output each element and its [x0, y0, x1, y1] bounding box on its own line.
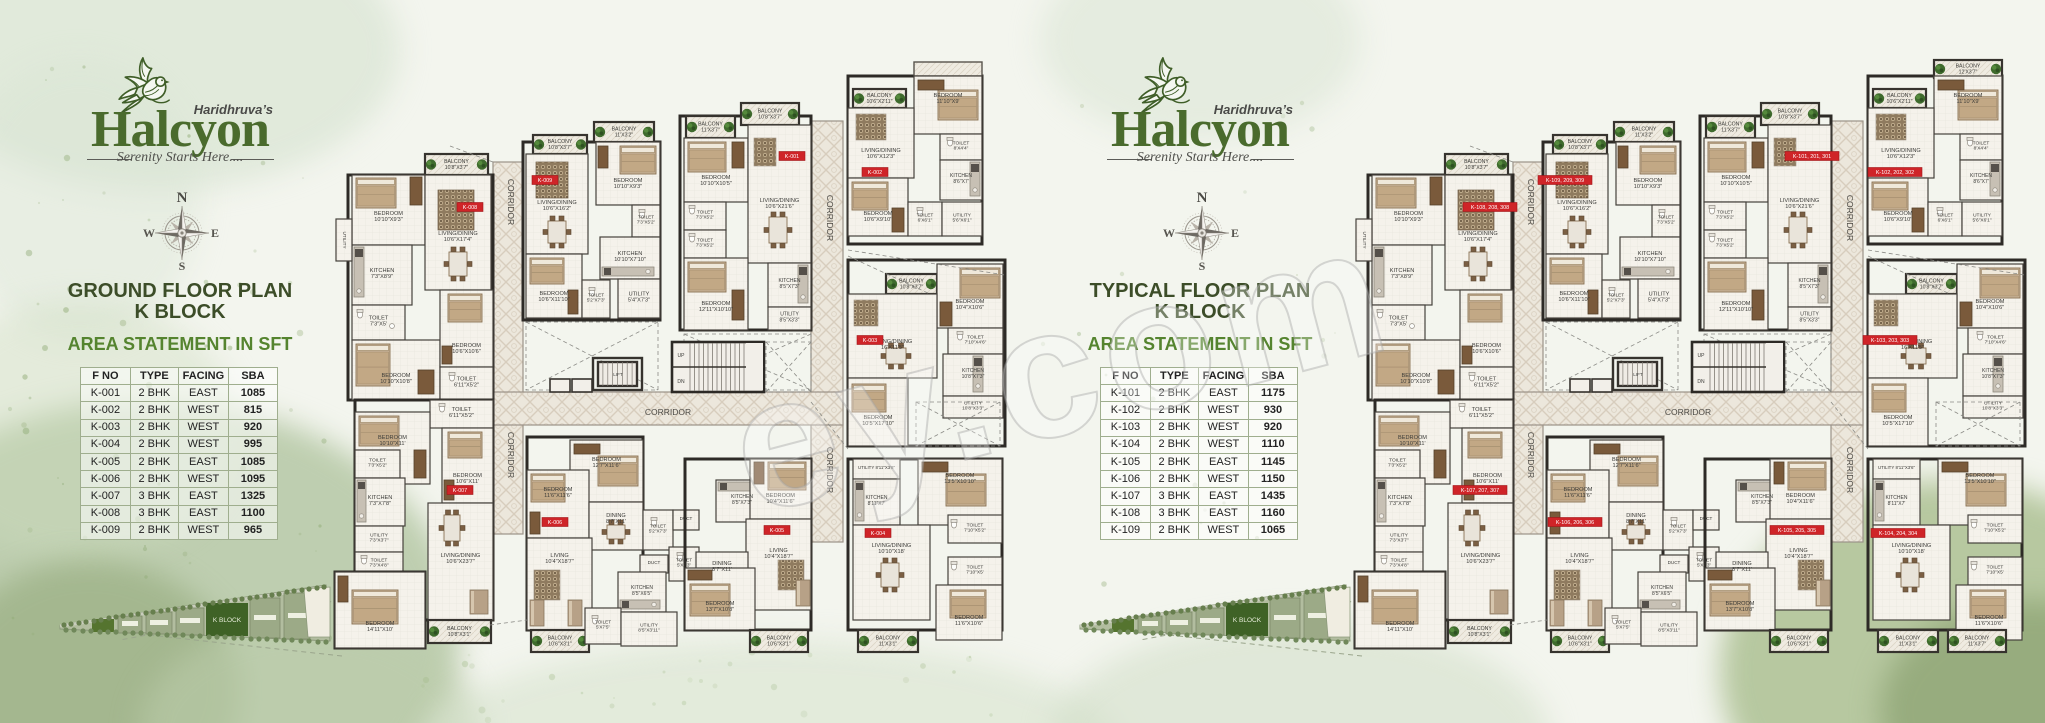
svg-text:DINING8'7"X11': DINING8'7"X11'	[1732, 561, 1752, 573]
svg-text:TOILET5'2"X7'3": TOILET5'2"X7'3"	[587, 292, 606, 302]
svg-text:BEDROOM10'5"X17'10": BEDROOM10'5"X17'10"	[1882, 415, 1914, 427]
svg-text:K-005: K-005	[770, 528, 784, 534]
svg-text:BEDROOM10'6"X10'6": BEDROOM10'6"X10'6"	[452, 343, 481, 355]
svg-text:BALCONY10'6"X3'1": BALCONY10'6"X3'1"	[548, 636, 573, 648]
svg-text:CORRIDOR: CORRIDOR	[1526, 432, 1536, 478]
svg-text:KITCHEN8'5"X6'5": KITCHEN8'5"X6'5"	[631, 585, 653, 597]
svg-text:TOILET5'X7'3": TOILET5'X7'3"	[1696, 557, 1712, 567]
svg-text:BEDROOM10'6"X9'10": BEDROOM10'6"X9'10"	[864, 211, 893, 223]
svg-text:TOILET7'3"X5'2": TOILET7'3"X5'2"	[1716, 209, 1735, 219]
svg-text:LIVING/DINING10'6"X16'2": LIVING/DINING10'6"X16'2"	[537, 200, 576, 212]
svg-text:UTILITY7'3"X3'7": UTILITY7'3"X3'7"	[1389, 532, 1408, 543]
svg-text:BEDROOM10'10"X10'8": BEDROOM10'10"X10'8"	[1400, 373, 1432, 385]
svg-text:TOILET5'X7'3": TOILET5'X7'3"	[676, 557, 692, 567]
svg-text:BEDROOM14'11"X10': BEDROOM14'11"X10'	[1386, 621, 1415, 633]
svg-text:BALCONY12'X3'7": BALCONY12'X3'7"	[1956, 64, 1981, 76]
svg-text:BEDROOM12'7"X11'6": BEDROOM12'7"X11'6"	[1612, 457, 1641, 469]
svg-text:BEDROOM10'6"X11': BEDROOM10'6"X11'	[1473, 473, 1502, 485]
svg-text:TOILET7'3"X5'2": TOILET7'3"X5'2"	[696, 209, 715, 219]
svg-text:BEDROOM10'6"X9'10": BEDROOM10'6"X9'10"	[1884, 211, 1913, 223]
svg-text:BALCONY10'8"X3'7": BALCONY10'8"X3'7"	[548, 139, 573, 151]
svg-text:BEDROOM10'10"X9'3": BEDROOM10'10"X9'3"	[614, 178, 643, 190]
svg-text:BALCONY10'6"X2'11": BALCONY10'6"X2'11"	[1886, 93, 1912, 105]
svg-text:TOILET6'11"X5'2": TOILET6'11"X5'2"	[1474, 376, 1499, 388]
svg-text:BALCONY11'X3'7": BALCONY11'X3'7"	[1965, 636, 1990, 648]
svg-text:TOILET7'3"X4'8": TOILET7'3"X4'8"	[1389, 557, 1408, 568]
svg-text:BALCONY10'6"X2'11": BALCONY10'6"X2'11"	[866, 93, 892, 105]
svg-text:BALCONY10'8"X3'7": BALCONY10'8"X3'7"	[1464, 159, 1489, 171]
svg-text:KITCHEN7'3"X8'9": KITCHEN7'3"X8'9"	[1390, 268, 1415, 280]
svg-text:UTILITY10'8"X3'3": UTILITY10'8"X3'3"	[962, 400, 984, 411]
svg-text:CORRIDOR: CORRIDOR	[506, 179, 516, 225]
svg-text:BEDROOM10'6"X11'10": BEDROOM10'6"X11'10"	[538, 291, 569, 303]
svg-text:UTILITY 8'11"X3'6": UTILITY 8'11"X3'6"	[1878, 465, 1916, 470]
svg-text:BALCONY10'8"X3'7": BALCONY10'8"X3'7"	[758, 109, 783, 121]
svg-text:TOILET5'2"X7'3": TOILET5'2"X7'3"	[649, 523, 668, 533]
svg-text:CORRIDOR: CORRIDOR	[825, 195, 835, 241]
svg-text:UTILITY8'5"X3'3": UTILITY8'5"X3'3"	[1800, 312, 1820, 324]
svg-text:K-108, 208, 308: K-108, 208, 308	[1471, 205, 1509, 211]
svg-text:K-109, 209, 309: K-109, 209, 309	[1546, 178, 1584, 184]
svg-text:DN: DN	[1697, 379, 1705, 385]
svg-text:KITCHEN8'5"X7'3": KITCHEN8'5"X7'3"	[779, 278, 801, 290]
svg-text:K-002: K-002	[868, 170, 882, 176]
svg-text:DUCT: DUCT	[648, 560, 661, 565]
svg-text:BEDROOM13'5"X10'10": BEDROOM13'5"X10'10"	[1964, 473, 1996, 485]
svg-text:KITCHEN10'8"X7'3": KITCHEN10'8"X7'3"	[962, 368, 985, 380]
svg-text:CORRIDOR: CORRIDOR	[1526, 179, 1536, 225]
svg-text:BEDROOM10'10"X11': BEDROOM10'10"X11'	[1398, 435, 1427, 447]
svg-text:N: N	[177, 190, 188, 206]
svg-text:UTILITY8'5"X3'11": UTILITY8'5"X3'11"	[638, 622, 660, 633]
svg-text:BALCONY10'8"X3'7": BALCONY10'8"X3'7"	[899, 279, 924, 291]
svg-text:TOILET7'3"X5'2": TOILET7'3"X5'2"	[637, 214, 656, 224]
svg-text:KITCHEN8'5"X7'3": KITCHEN8'5"X7'3"	[1799, 278, 1821, 290]
svg-text:UTILITY5'6"X6'1": UTILITY5'6"X6'1"	[1972, 212, 1991, 223]
svg-text:BEDROOM13'7"X10'8": BEDROOM13'7"X10'8"	[706, 601, 735, 613]
svg-text:TOILET5'X7'5": TOILET5'X7'5"	[595, 619, 611, 629]
svg-text:BEDROOM12'7"X11'6": BEDROOM12'7"X11'6"	[592, 457, 621, 469]
svg-text:BEDROOM11'6"X10'6": BEDROOM11'6"X10'6"	[955, 615, 984, 627]
svg-text:TOILET5'X7'5": TOILET5'X7'5"	[1615, 619, 1631, 629]
svg-text:BEDROOM10'4"X10'6": BEDROOM10'4"X10'6"	[956, 299, 985, 311]
svg-text:DUCT: DUCT	[1700, 516, 1713, 521]
svg-text:N: N	[1197, 190, 1208, 206]
svg-text:DN: DN	[677, 379, 685, 385]
svg-text:BEDROOM13'5"X10'10": BEDROOM13'5"X10'10"	[944, 473, 976, 485]
svg-text:BEDROOM10'4"X10'6": BEDROOM10'4"X10'6"	[1976, 299, 2005, 311]
svg-text:BALCONY10'8"X3'1": BALCONY10'8"X3'1"	[447, 626, 472, 638]
svg-text:K BLOCK: K BLOCK	[213, 617, 242, 624]
svg-text:E: E	[211, 226, 219, 240]
svg-text:BEDROOM10'10"X11': BEDROOM10'10"X11'	[378, 435, 407, 447]
svg-text:BALCONY10'8"X3'7": BALCONY10'8"X3'7"	[1568, 139, 1593, 151]
svg-text:BALCONY11'X3'7": BALCONY11'X3'7"	[698, 122, 723, 134]
svg-text:TOILET7'3"X5'2": TOILET7'3"X5'2"	[1388, 457, 1407, 468]
svg-text:BEDROOM12'11"X10'10": BEDROOM12'11"X10'10"	[1719, 301, 1753, 313]
svg-text:BEDROOM10'10"X9'3": BEDROOM10'10"X9'3"	[1634, 178, 1663, 190]
svg-text:K-001: K-001	[785, 154, 799, 160]
svg-text:S: S	[179, 259, 186, 273]
svg-text:UTILITY: UTILITY	[342, 231, 347, 248]
svg-text:BEDROOM10'4"X11'6": BEDROOM10'4"X11'6"	[1786, 493, 1815, 505]
svg-text:CORRIDOR: CORRIDOR	[645, 407, 691, 417]
svg-text:TOILET7'3"X5'2": TOILET7'3"X5'2"	[1716, 237, 1735, 247]
svg-text:TOILET5'2"X7'3": TOILET5'2"X7'3"	[1607, 292, 1626, 302]
svg-text:TOILET6'X6'1": TOILET6'X6'1"	[1937, 212, 1954, 223]
svg-text:LIFT: LIFT	[613, 372, 623, 377]
svg-text:UTILITY8'5"X3'11": UTILITY8'5"X3'11"	[1658, 622, 1680, 633]
svg-text:BALCONY11'X3'1": BALCONY11'X3'1"	[876, 636, 901, 648]
svg-text:DINING8'7"X11': DINING8'7"X11'	[606, 513, 626, 525]
svg-text:BEDROOM10'10"X10'5": BEDROOM10'10"X10'5"	[1720, 175, 1752, 187]
svg-text:K-008: K-008	[463, 205, 477, 211]
svg-text:LIVING/DINING10'6"X17'4": LIVING/DINING10'6"X17'4"	[438, 231, 477, 243]
svg-text:TOILET6'11"X5'2": TOILET6'11"X5'2"	[449, 407, 474, 419]
svg-text:LIVING/DINING10'6"X23'7": LIVING/DINING10'6"X23'7"	[1461, 553, 1500, 565]
svg-text:K-101, 201, 301: K-101, 201, 301	[1793, 154, 1831, 160]
svg-text:TOILET7'10"X5': TOILET7'10"X5'	[1986, 564, 2003, 575]
svg-text:DUCT: DUCT	[680, 516, 693, 521]
svg-text:TOILET7'3"X5': TOILET7'3"X5'	[1389, 315, 1409, 327]
svg-text:UTILITY7'3"X3'7": UTILITY7'3"X3'7"	[369, 532, 388, 543]
svg-text:K BLOCK: K BLOCK	[1233, 617, 1262, 624]
svg-text:K-102, 202, 302: K-102, 202, 302	[1876, 170, 1914, 176]
svg-text:BEDROOM13'7"X10'8": BEDROOM13'7"X10'8"	[1726, 601, 1755, 613]
svg-text:UP: UP	[1698, 353, 1706, 359]
svg-text:TOILET7'3"X5'2": TOILET7'3"X5'2"	[1657, 214, 1676, 224]
svg-text:UTILITY: UTILITY	[1362, 231, 1367, 248]
svg-text:K-006: K-006	[548, 520, 562, 526]
svg-text:K-003: K-003	[863, 338, 877, 344]
svg-text:KITCHEN8'5"X7'3": KITCHEN8'5"X7'3"	[731, 494, 753, 506]
svg-text:UTILITY5'4"X7'3": UTILITY5'4"X7'3"	[1648, 291, 1670, 303]
svg-text:LIVING/DINING10'6"X21'6": LIVING/DINING10'6"X21'6"	[760, 198, 799, 210]
svg-text:BEDROOM10'4"X11'6": BEDROOM10'4"X11'6"	[766, 493, 795, 505]
svg-text:DUCT: DUCT	[1668, 560, 1681, 565]
svg-text:S: S	[1199, 259, 1206, 273]
svg-text:TOILET7'10"X5'2": TOILET7'10"X5'2"	[1984, 522, 2006, 533]
svg-text:K-004: K-004	[871, 531, 885, 537]
svg-text:TOILET6'X6'1": TOILET6'X6'1"	[917, 212, 934, 223]
svg-text:TOILET7'3"X5'2": TOILET7'3"X5'2"	[368, 457, 387, 468]
svg-text:BALCONY10'8"X3'7": BALCONY10'8"X3'7"	[444, 159, 469, 171]
svg-text:CORRIDOR: CORRIDOR	[506, 432, 516, 478]
svg-text:TOILET7'10"X5': TOILET7'10"X5'	[966, 564, 983, 575]
svg-text:BEDROOM11'6"X11'6": BEDROOM11'6"X11'6"	[1564, 487, 1593, 499]
svg-text:LIVING/DINING10'6"X21'6": LIVING/DINING10'6"X21'6"	[1780, 198, 1819, 210]
svg-text:TOILET8'X4'4": TOILET8'X4'4"	[953, 140, 970, 151]
svg-text:KITCHEN10'8"X7'3": KITCHEN10'8"X7'3"	[1982, 368, 2005, 380]
svg-text:BEDROOM10'6"X11'10": BEDROOM10'6"X11'10"	[1558, 291, 1589, 303]
svg-text:CORRIDOR: CORRIDOR	[825, 447, 835, 493]
svg-text:KITCHEN8'11"X7': KITCHEN8'11"X7'	[866, 495, 888, 507]
svg-text:DINING8'7"X11': DINING8'7"X11'	[712, 561, 732, 573]
svg-text:LIVING/DINING10'6"X23'7": LIVING/DINING10'6"X23'7"	[441, 553, 480, 565]
svg-text:BALCONY10'6"X3'1": BALCONY10'6"X3'1"	[1787, 636, 1812, 648]
svg-text:BEDROOM14'11"X10': BEDROOM14'11"X10'	[366, 621, 395, 633]
svg-text:K-107, 207, 307: K-107, 207, 307	[1461, 488, 1499, 494]
svg-text:TOILET6'11"X5'2": TOILET6'11"X5'2"	[1469, 407, 1494, 419]
svg-text:CORRIDOR: CORRIDOR	[1845, 195, 1855, 241]
svg-text:KITCHEN8'5"X7'3": KITCHEN8'5"X7'3"	[1751, 494, 1773, 506]
svg-text:BEDROOM10'6"X10'6": BEDROOM10'6"X10'6"	[1472, 343, 1501, 355]
svg-text:KITCHEN10'10"X7'10": KITCHEN10'10"X7'10"	[614, 251, 646, 263]
svg-text:BEDROOM10'10"X9'3": BEDROOM10'10"X9'3"	[374, 211, 403, 223]
svg-text:W: W	[143, 226, 155, 240]
svg-text:LIVING/DINING10'6"X12'3": LIVING/DINING10'6"X12'3"	[1881, 148, 1920, 160]
svg-text:UTILITY 8'11"X3'6": UTILITY 8'11"X3'6"	[858, 465, 896, 470]
svg-text:BALCONY11'X3'2": BALCONY11'X3'2"	[1632, 127, 1657, 139]
svg-text:W: W	[1163, 226, 1175, 240]
svg-text:TOILET7'10"X5'2": TOILET7'10"X5'2"	[964, 522, 986, 533]
svg-text:E: E	[1231, 226, 1239, 240]
svg-text:TOILET8'X4'4": TOILET8'X4'4"	[1973, 140, 1990, 151]
svg-text:BEDROOM11'6"X11'6": BEDROOM11'6"X11'6"	[544, 487, 573, 499]
svg-text:K-007: K-007	[453, 488, 467, 494]
svg-text:K-106, 206, 306: K-106, 206, 306	[1556, 520, 1594, 526]
svg-text:KITCHEN7'3"X7'8": KITCHEN7'3"X7'8"	[1388, 495, 1413, 507]
svg-text:BALCONY10'8"X3'1": BALCONY10'8"X3'1"	[1467, 626, 1492, 638]
svg-text:TOILET7'10"X4'6": TOILET7'10"X4'6"	[965, 334, 987, 345]
svg-text:BALCONY10'8"X3'7": BALCONY10'8"X3'7"	[1778, 109, 1803, 121]
svg-text:TOILET7'3"X5'2": TOILET7'3"X5'2"	[696, 237, 715, 247]
svg-text:UTILITY8'5"X3'3": UTILITY8'5"X3'3"	[780, 312, 800, 324]
svg-text:BALCONY10'8"X3'7": BALCONY10'8"X3'7"	[1919, 279, 1944, 291]
svg-text:DINING8'7"X11': DINING8'7"X11'	[1626, 513, 1646, 525]
svg-text:KITCHEN8'11"X7': KITCHEN8'11"X7'	[1886, 495, 1908, 507]
svg-text:CORRIDOR: CORRIDOR	[1845, 447, 1855, 493]
svg-text:BALCONY11'X3'7": BALCONY11'X3'7"	[1718, 122, 1743, 134]
svg-text:BEDROOM10'6"X11': BEDROOM10'6"X11'	[453, 473, 482, 485]
svg-text:BEDROOM10'5"X17'10": BEDROOM10'5"X17'10"	[862, 415, 894, 427]
svg-text:KITCHEN10'10"X7'10": KITCHEN10'10"X7'10"	[1634, 251, 1666, 263]
svg-text:LIVING/DINING10'6"X17'4": LIVING/DINING10'6"X17'4"	[1458, 231, 1497, 243]
svg-text:KITCHEN7'3"X8'9": KITCHEN7'3"X8'9"	[370, 268, 395, 280]
svg-text:CORRIDOR: CORRIDOR	[1665, 407, 1711, 417]
svg-text:BALCONY11'X3'1": BALCONY11'X3'1"	[1896, 636, 1921, 648]
svg-text:TOILET7'3"X5': TOILET7'3"X5'	[369, 315, 389, 327]
svg-text:BALCONY10'6"X3'1": BALCONY10'6"X3'1"	[767, 636, 792, 648]
svg-text:BALCONY11'X3'2": BALCONY11'X3'2"	[612, 127, 637, 139]
svg-text:TOILET5'2"X7'3": TOILET5'2"X7'3"	[1669, 523, 1688, 533]
svg-text:LIFT: LIFT	[1633, 372, 1643, 377]
svg-text:UTILITY5'4"X7'3": UTILITY5'4"X7'3"	[628, 291, 650, 303]
svg-text:KITCHEN7'3"X7'8": KITCHEN7'3"X7'8"	[368, 495, 393, 507]
svg-text:LIVING/DINING10'6"X16'2": LIVING/DINING10'6"X16'2"	[1557, 200, 1596, 212]
svg-text:BEDROOM11'10"X9': BEDROOM11'10"X9'	[934, 93, 963, 105]
svg-text:BEDROOM12'11"X10'10": BEDROOM12'11"X10'10"	[699, 301, 733, 313]
svg-text:K-104, 204, 304: K-104, 204, 304	[1879, 531, 1917, 537]
svg-text:TOILET6'11"X5'2": TOILET6'11"X5'2"	[454, 376, 479, 388]
svg-text:UP: UP	[678, 353, 686, 359]
svg-text:BEDROOM10'10"X10'5": BEDROOM10'10"X10'5"	[700, 175, 732, 187]
svg-text:TOILET7'10"X4'6": TOILET7'10"X4'6"	[1985, 334, 2007, 345]
svg-text:BALCONY10'6"X3'1": BALCONY10'6"X3'1"	[1568, 636, 1593, 648]
svg-text:BEDROOM10'10"X10'8": BEDROOM10'10"X10'8"	[380, 373, 412, 385]
svg-text:BEDROOM10'10"X9'3": BEDROOM10'10"X9'3"	[1394, 211, 1423, 223]
svg-text:K-103, 203, 303: K-103, 203, 303	[1871, 338, 1909, 344]
svg-text:UTILITY10'8"X3'3": UTILITY10'8"X3'3"	[1982, 400, 2004, 411]
svg-text:UTILITY5'6"X6'1": UTILITY5'6"X6'1"	[952, 212, 971, 223]
svg-text:K-009: K-009	[538, 178, 552, 184]
svg-text:LIVING/DINING10'6"X12'3": LIVING/DINING10'6"X12'3"	[861, 148, 900, 160]
svg-text:BEDROOM11'6"X10'6": BEDROOM11'6"X10'6"	[1975, 615, 2004, 627]
svg-text:K-105, 205, 305: K-105, 205, 305	[1778, 528, 1816, 534]
svg-text:BEDROOM11'10"X9': BEDROOM11'10"X9'	[1954, 93, 1983, 105]
svg-text:TOILET7'3"X4'8": TOILET7'3"X4'8"	[369, 557, 388, 568]
svg-text:KITCHEN8'5"X6'5": KITCHEN8'5"X6'5"	[1651, 585, 1673, 597]
